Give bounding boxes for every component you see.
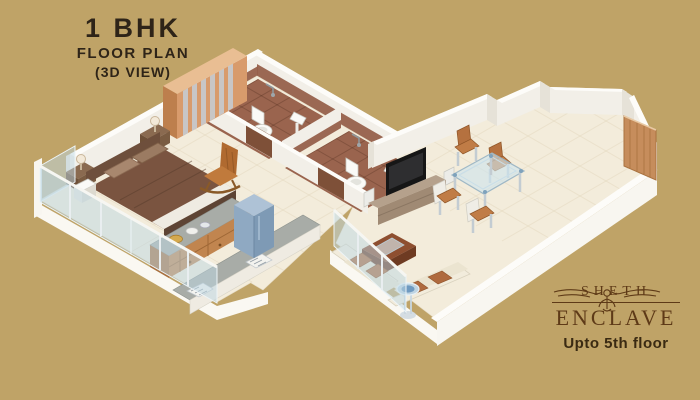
title-unit-type: 1 BHK [58, 14, 208, 42]
brand-tagline: Upto 5th floor [552, 335, 680, 352]
page-title: 1 BHK FLOOR PLAN (3D VIEW) [58, 14, 208, 80]
title-view-type: (3D VIEW) [58, 64, 208, 80]
brochure-page: 1 BHK FLOOR PLAN (3D VIEW) SHETH ENCLAVE… [0, 0, 700, 400]
brand-logo: SHETH ENCLAVE Upto 5th floor [552, 284, 680, 352]
flourish-ornament-icon [552, 285, 662, 315]
refrigerator [234, 194, 274, 258]
title-floor-plan: FLOOR PLAN [58, 45, 208, 62]
